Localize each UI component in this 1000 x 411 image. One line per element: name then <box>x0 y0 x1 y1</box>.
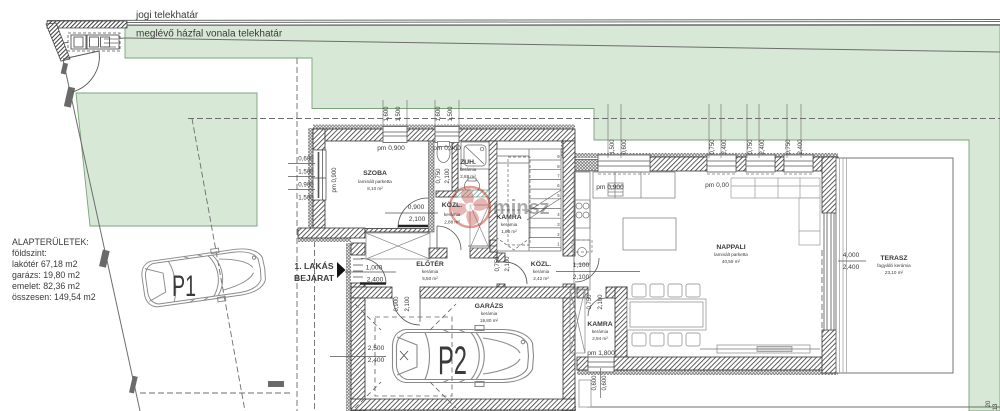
svg-text:0,900: 0,900 <box>408 204 425 211</box>
svg-text:jogi telekhatár: jogi telekhatár <box>135 10 199 21</box>
svg-text:23,10 m²: 23,10 m² <box>885 270 904 275</box>
svg-text:2,88 m²: 2,88 m² <box>444 220 460 225</box>
svg-text:0,600: 0,600 <box>592 375 598 391</box>
svg-text:13: 13 <box>993 403 999 410</box>
svg-text:GARÁZS: GARÁZS <box>475 301 504 310</box>
svg-text:1,500: 1,500 <box>298 195 314 202</box>
svg-text:0,600: 0,600 <box>622 139 628 155</box>
svg-text:KÖZL.: KÖZL. <box>442 200 462 209</box>
svg-text:8,10 m²: 8,10 m² <box>367 186 383 191</box>
svg-text:BEJÁRAT: BEJÁRAT <box>294 273 335 283</box>
svg-text:garázs: 19,80 m2: garázs: 19,80 m2 <box>12 270 80 280</box>
svg-text:1,500: 1,500 <box>396 106 402 122</box>
svg-text:lakótér 67,18 m2: lakótér 67,18 m2 <box>12 259 78 269</box>
svg-text:P1: P1 <box>172 270 196 303</box>
svg-text:4,000: 4,000 <box>843 252 860 259</box>
svg-text:1,500: 1,500 <box>610 139 616 155</box>
svg-text:0,750: 0,750 <box>710 139 716 155</box>
svg-text:pm 0,00: pm 0,00 <box>705 182 729 189</box>
svg-text:kerámia: kerámia <box>592 329 609 334</box>
svg-text:5,50 m²: 5,50 m² <box>422 276 438 281</box>
svg-text:2,500: 2,500 <box>368 345 385 352</box>
svg-text:ZUH.: ZUH. <box>460 159 476 166</box>
svg-text:laminált parketta: laminált parketta <box>714 252 748 257</box>
svg-text:0,900: 0,900 <box>298 182 314 189</box>
svg-text:0,600: 0,600 <box>298 156 314 163</box>
svg-text:P2: P2 <box>438 339 467 383</box>
svg-text:2,400: 2,400 <box>843 264 860 271</box>
svg-text:1,500: 1,500 <box>448 106 454 122</box>
svg-text:emelet: 82,36 m2: emelet: 82,36 m2 <box>12 281 80 291</box>
svg-text:2,400: 2,400 <box>722 139 728 155</box>
svg-text:0,750: 0,750 <box>495 256 501 272</box>
svg-text:20: 20 <box>986 400 992 407</box>
svg-text:összesen: 149,54 m2: összesen: 149,54 m2 <box>12 292 96 302</box>
svg-text:kerámia: kerámia <box>444 212 461 217</box>
svg-text:2,94 m²: 2,94 m² <box>592 336 608 341</box>
svg-text:2,100: 2,100 <box>445 168 451 184</box>
svg-text:kerámia: kerámia <box>533 269 550 274</box>
svg-text:kerámia: kerámia <box>501 222 518 227</box>
svg-text:2,42 m²: 2,42 m² <box>533 276 549 281</box>
svg-text:1,600: 1,600 <box>384 106 390 122</box>
svg-text:1,500: 1,500 <box>298 169 314 176</box>
svg-text:0,750: 0,750 <box>587 294 593 310</box>
svg-text:pm 1,800: pm 1,800 <box>587 350 615 357</box>
svg-text:2,400: 2,400 <box>760 139 766 155</box>
svg-text:19,80 m²: 19,80 m² <box>480 318 499 323</box>
svg-text:2,400: 2,400 <box>368 357 385 364</box>
svg-text:SZOBA: SZOBA <box>363 170 387 177</box>
svg-text:KÖZL.: KÖZL. <box>531 259 551 268</box>
svg-text:laminált parketta: laminált parketta <box>358 179 392 184</box>
svg-text:pm 0,900: pm 0,900 <box>433 145 461 152</box>
svg-text:2,100: 2,100 <box>505 256 511 272</box>
svg-text:fagyálló kerámia: fagyálló kerámia <box>877 263 911 268</box>
svg-text:földszint:: földszint: <box>12 248 47 258</box>
svg-text:40,59 m²: 40,59 m² <box>722 259 741 264</box>
svg-text:2,100: 2,100 <box>573 274 590 281</box>
svg-text:1,100: 1,100 <box>573 262 590 269</box>
svg-text:ALAPTERÜLETEK:: ALAPTERÜLETEK: <box>12 237 89 247</box>
svg-text:2,100: 2,100 <box>598 294 604 310</box>
svg-text:ELŐTÉR: ELŐTÉR <box>416 259 444 268</box>
svg-text:0,750: 0,750 <box>436 168 442 184</box>
svg-text:kerámia: kerámia <box>481 311 498 316</box>
svg-text:2,100: 2,100 <box>409 216 426 223</box>
svg-text:KAMRA: KAMRA <box>496 214 521 221</box>
svg-text:0,750: 0,750 <box>748 139 754 155</box>
svg-text:NAPPALI: NAPPALI <box>716 244 745 251</box>
svg-text:TERASZ: TERASZ <box>880 255 907 262</box>
svg-text:1,86 m²: 1,86 m² <box>501 229 517 234</box>
svg-text:meglévő házfal vonala telekhat: meglévő házfal vonala telekhatár <box>136 29 283 40</box>
svg-text:kerámia: kerámia <box>422 269 439 274</box>
svg-text:pm 0,900: pm 0,900 <box>596 184 624 191</box>
svg-text:0,600: 0,600 <box>602 375 608 391</box>
svg-text:2,100: 2,100 <box>405 296 411 312</box>
svg-text:kerámia: kerámia <box>460 167 477 172</box>
svg-text:pm 0,900: pm 0,900 <box>377 145 405 152</box>
svg-text:1,600: 1,600 <box>436 106 442 122</box>
svg-text:pm 0,900: pm 0,900 <box>332 167 338 193</box>
svg-text:1. LAKÁS: 1. LAKÁS <box>294 261 333 271</box>
svg-text:KAMRA: KAMRA <box>587 321 612 328</box>
svg-text:0,900: 0,900 <box>394 296 400 312</box>
svg-text:1,000: 1,000 <box>366 265 383 272</box>
svg-text:2,88 m²: 2,88 m² <box>460 174 476 179</box>
svg-text:2,400: 2,400 <box>367 277 384 284</box>
